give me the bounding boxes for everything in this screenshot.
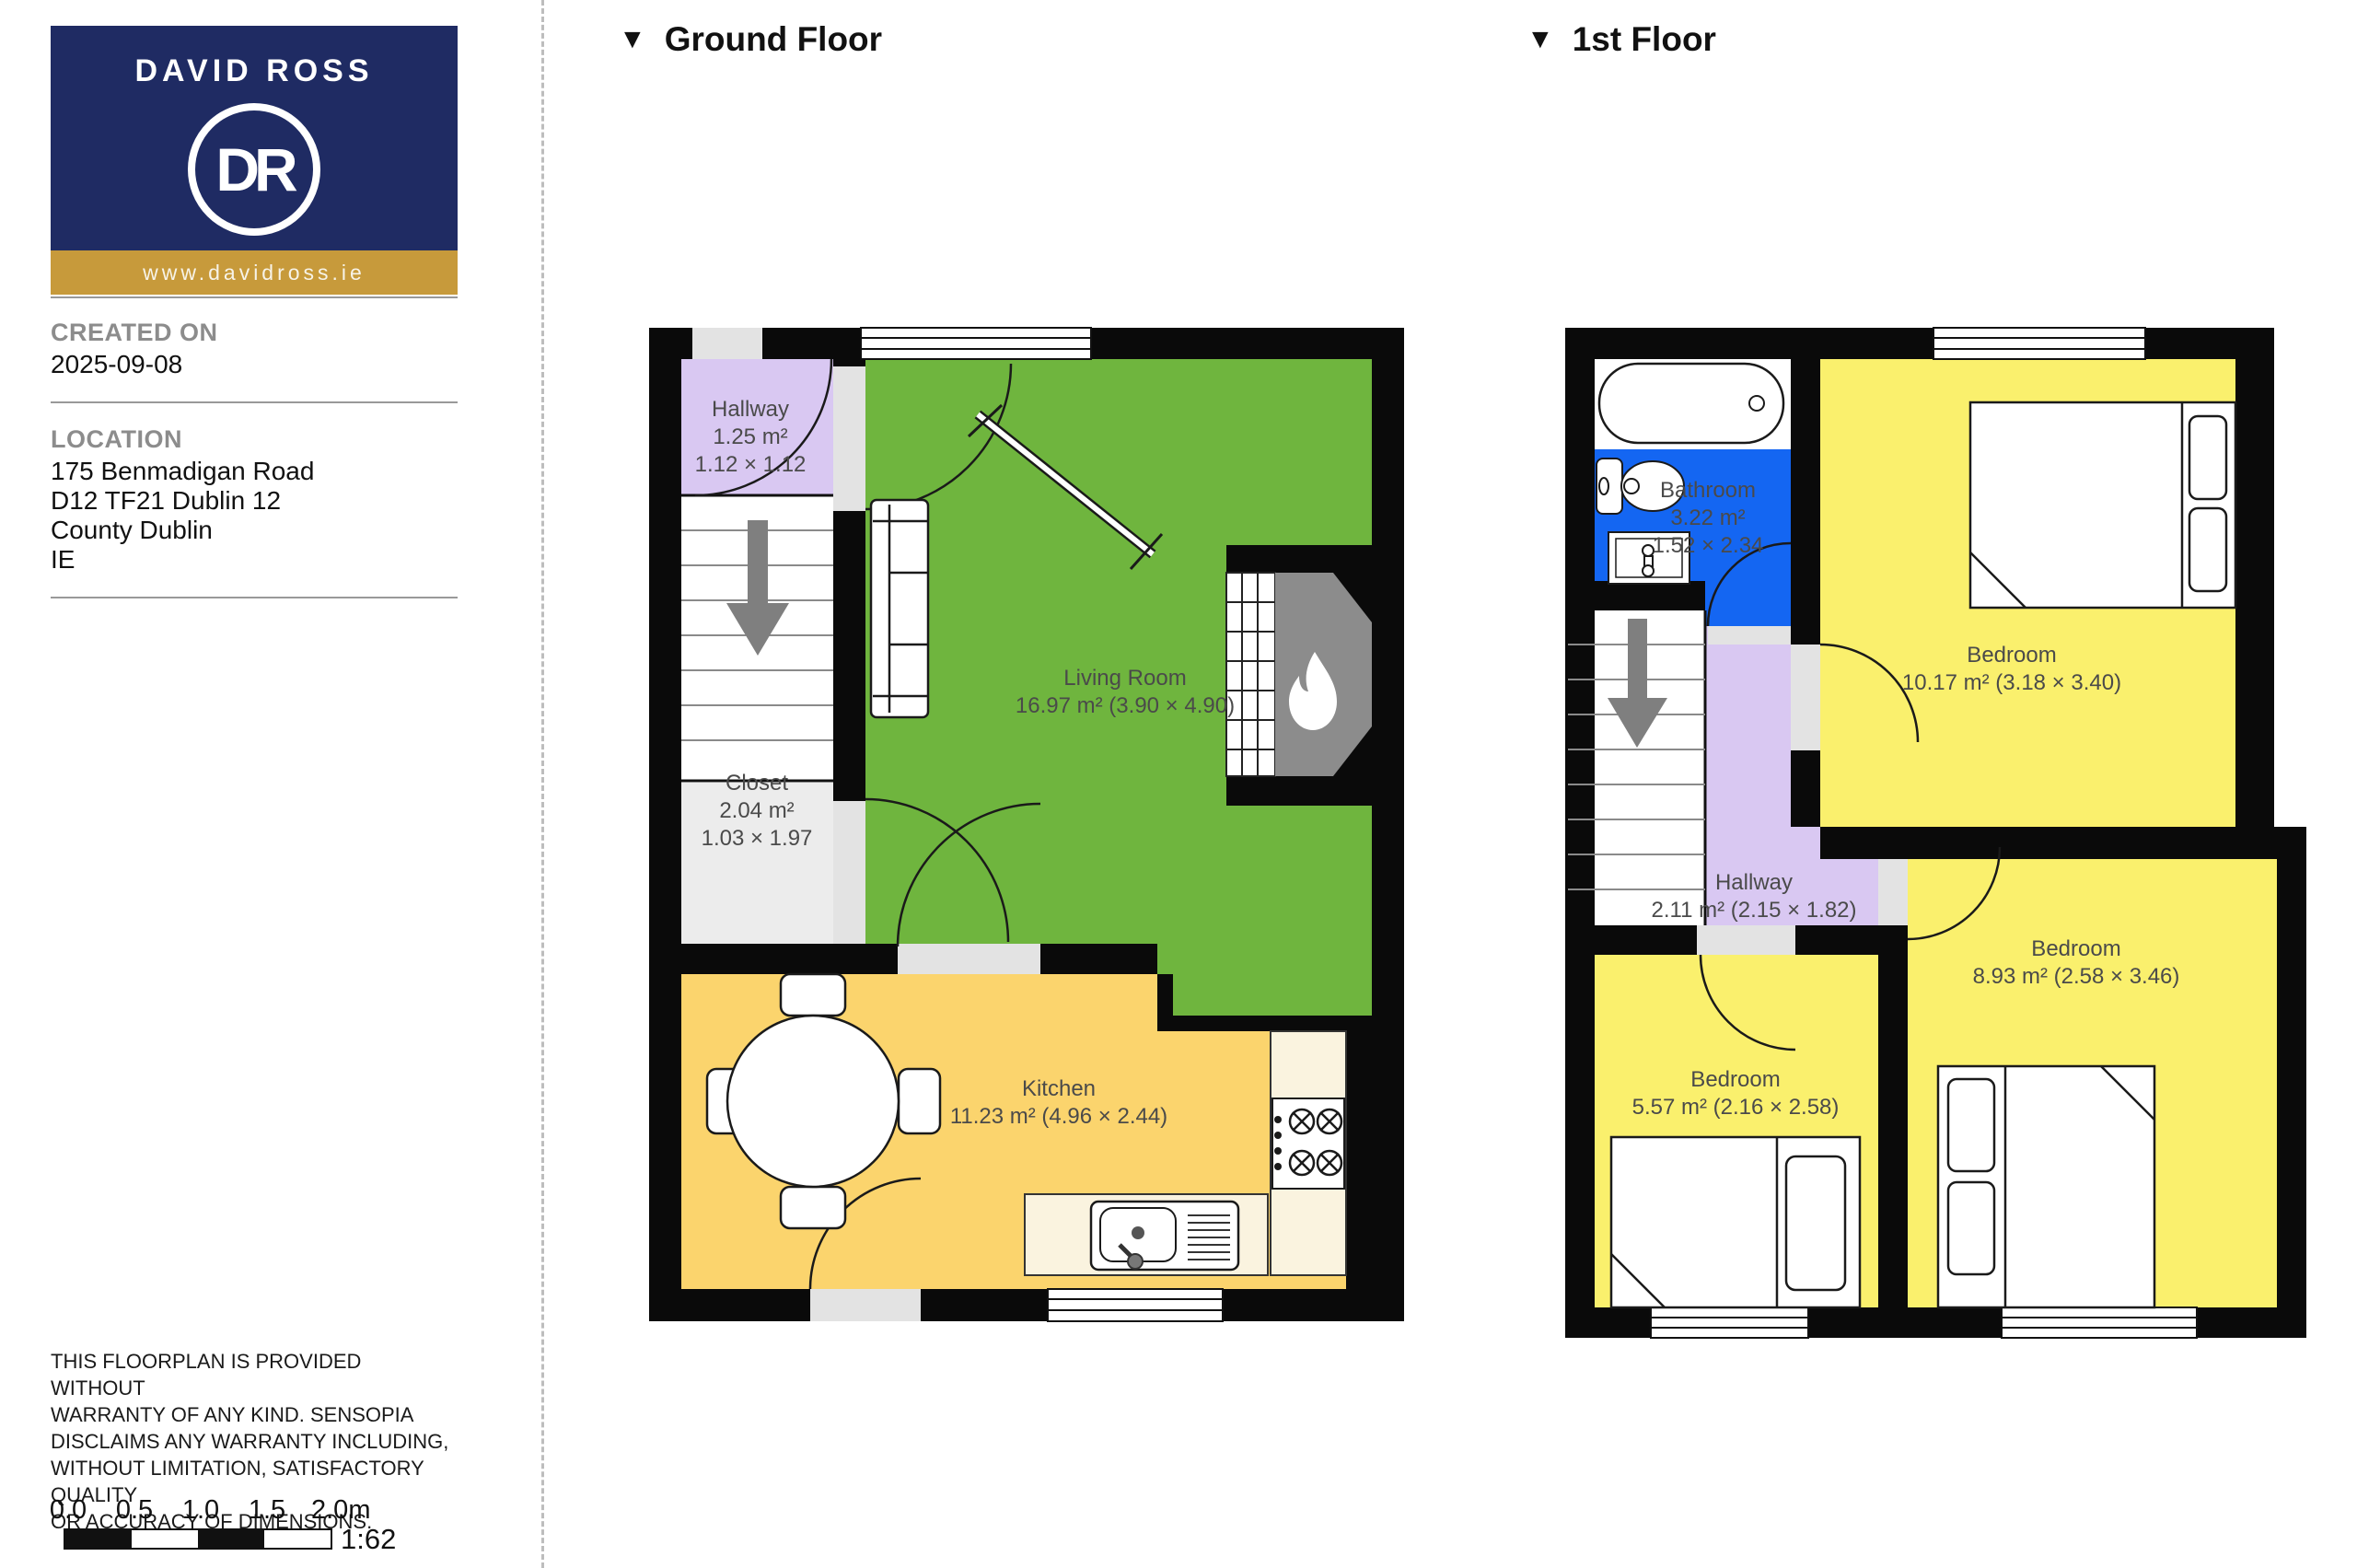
chair — [781, 974, 845, 1016]
label-first-bathroom: Bathroom 3.22 m² 1.52 × 2.34 — [1653, 477, 1764, 560]
label-ground-living-room: Living Room 16.97 m² (3.90 × 4.90) — [1016, 665, 1235, 720]
label-ground-closet: Closet 2.04 m² 1.03 × 1.97 — [702, 770, 813, 853]
pillow — [2189, 416, 2226, 499]
chair — [781, 1187, 845, 1228]
pillow — [1948, 1079, 1994, 1171]
fireplace — [1226, 545, 1372, 806]
stove — [1272, 1098, 1344, 1189]
bed-double — [1938, 1066, 2154, 1307]
label-first-bedroom-1: Bedroom 10.17 m² (3.18 × 3.40) — [1902, 642, 2121, 697]
entry-threshold — [692, 328, 762, 359]
label-first-bedroom-2: Bedroom 5.57 m² (2.16 × 2.58) — [1632, 1066, 1840, 1121]
pillow — [1786, 1156, 1845, 1290]
sink — [1091, 1202, 1238, 1270]
pillow — [2189, 508, 2226, 591]
label-first-bedroom-3: Bedroom 8.93 m² (2.58 × 3.46) — [1973, 935, 2180, 991]
label-ground-hallway: Hallway 1.25 m² 1.12 × 1.12 — [695, 396, 807, 479]
bed-double — [1970, 402, 2235, 608]
floorplan-graphics — [0, 0, 2357, 1568]
floorplan-page: DAVID ROSS DR www.davidross.ie CREATED O… — [0, 0, 2357, 1568]
chair — [899, 1069, 940, 1133]
bed-single — [1611, 1137, 1860, 1307]
pillow — [1948, 1182, 1994, 1274]
label-ground-kitchen: Kitchen 11.23 m² (4.96 × 2.44) — [950, 1075, 1167, 1131]
sofa — [871, 500, 928, 717]
bathtub — [1599, 364, 1783, 443]
label-first-hallway: Hallway 2.11 m² (2.15 × 1.82) — [1651, 869, 1856, 924]
